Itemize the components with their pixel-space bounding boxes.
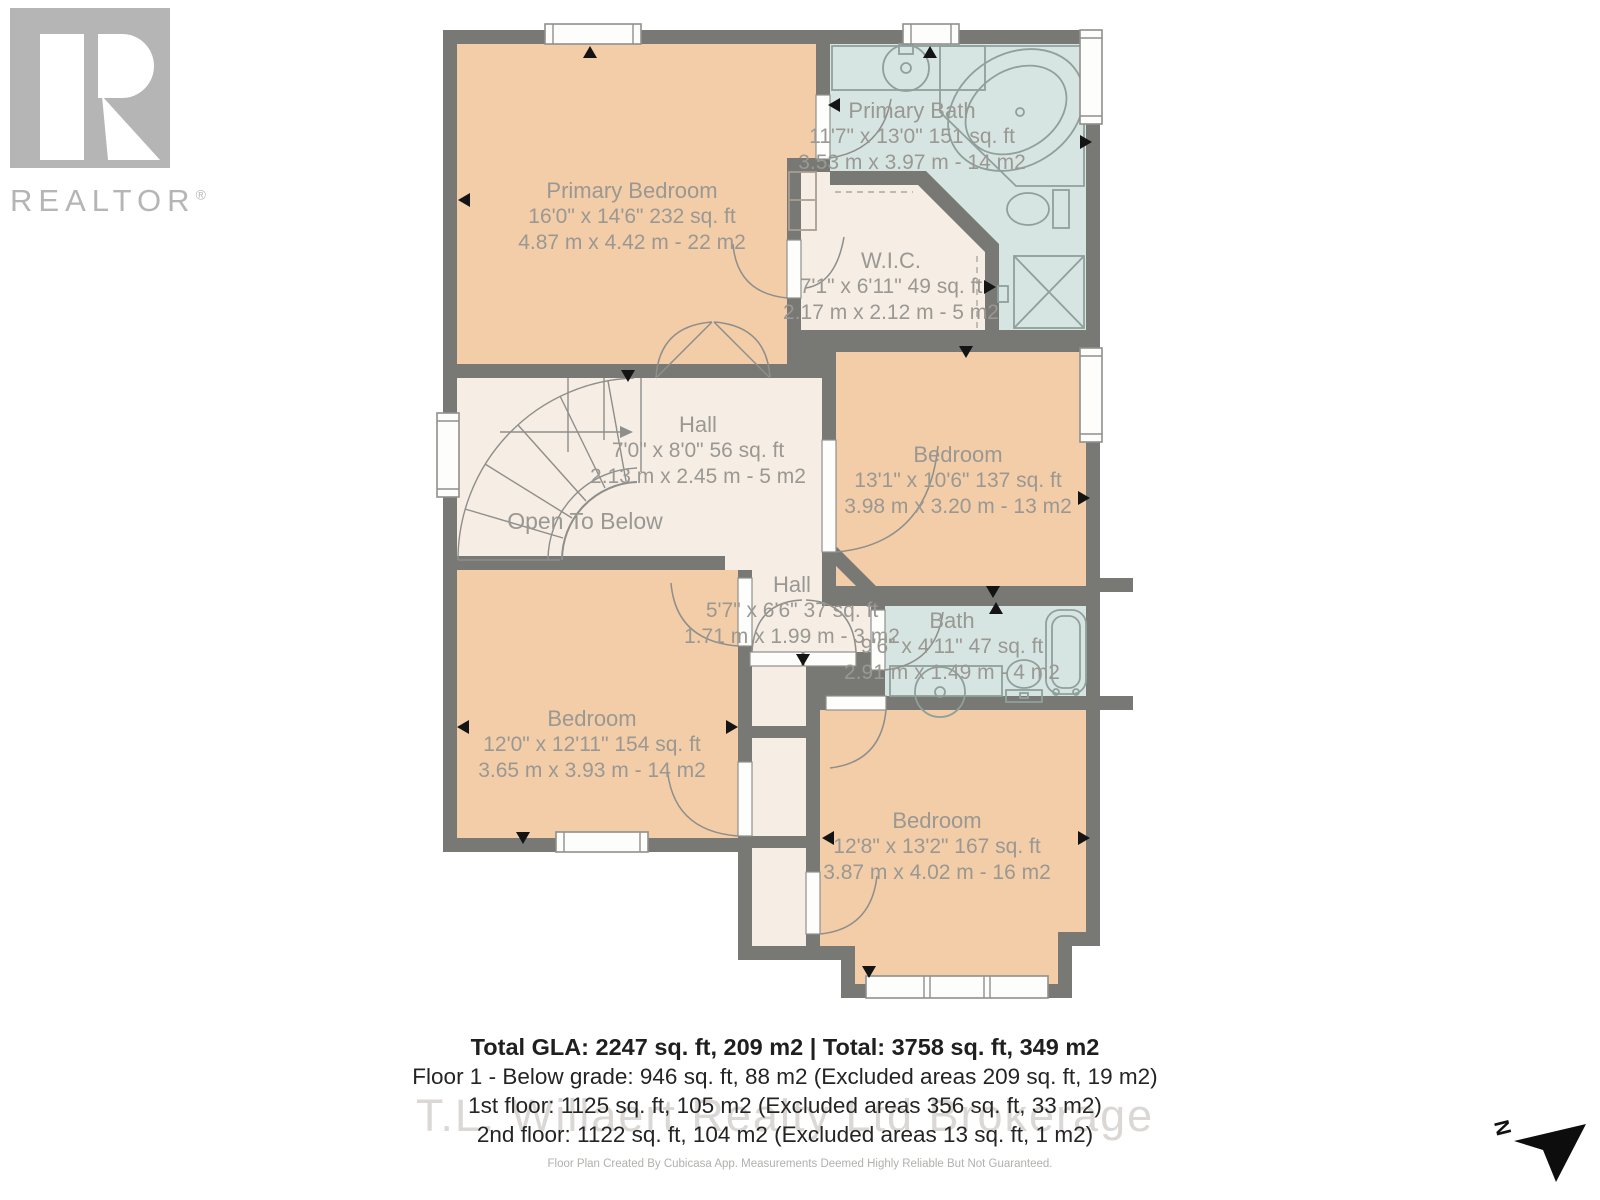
room-dim-ft: 9'6" x 4'11" 47 sq. ft [844, 634, 1060, 660]
realtor-logo-icon [10, 8, 170, 168]
window-icon [556, 832, 648, 852]
window-icon [437, 413, 459, 497]
disclaimer-text: Floor Plan Created By Cubicasa App. Meas… [300, 1158, 1300, 1170]
realtor-logo-text: REALTOR® [10, 183, 206, 219]
closet-top [752, 666, 806, 726]
room-dim-ft: 7'1" x 6'11" 49 sq. ft [783, 274, 999, 300]
room-dim-m: 3.53 m x 3.97 m - 14 m2 [798, 150, 1026, 176]
registered-mark: ® [196, 187, 206, 203]
room-dim-ft: 13'1" x 10'6" 137 sq. ft [844, 468, 1072, 494]
room-dim-m: 2.13 m x 2.45 m - 5 m2 [590, 464, 806, 490]
room-name: Bedroom [823, 808, 1051, 834]
closet-middle [752, 738, 806, 836]
room-label-wic: W.I.C. 7'1" x 6'11" 49 sq. ft 2.17 m x 2… [783, 248, 999, 326]
window-icon [545, 24, 641, 44]
total-gla-line: Total GLA: 2247 sq. ft, 209 m2 | Total: … [385, 1033, 1185, 1062]
window-icon [903, 24, 959, 44]
floor3-line: 2nd floor: 1122 sq. ft, 104 m2 (Excluded… [385, 1120, 1185, 1149]
room-dim-ft: 12'0" x 12'11" 154 sq. ft [478, 732, 706, 758]
room-name: W.I.C. [783, 248, 999, 274]
open-to-below-label: Open To Below [507, 508, 663, 535]
room-label-bedroom-right: Bedroom 13'1" x 10'6" 137 sq. ft 3.98 m … [844, 442, 1072, 520]
room-name: Bedroom [844, 442, 1072, 468]
room-name: Hall [684, 572, 900, 598]
room-dim-ft: 16'0" x 14'6" 232 sq. ft [518, 204, 746, 230]
room-name: Bedroom [478, 706, 706, 732]
room-dim-m: 2.91 m x 1.49 m - 4 m2 [844, 660, 1060, 686]
room-dim-ft: 11'7" x 13'0" 151 sq. ft [798, 124, 1026, 150]
bay-window-icon [866, 976, 1048, 998]
room-dim-m: 3.98 m x 3.20 m - 13 m2 [844, 494, 1072, 520]
room-name: Primary Bath [798, 98, 1026, 124]
room-label-bath: Bath 9'6" x 4'11" 47 sq. ft 2.91 m x 1.4… [844, 608, 1060, 686]
room-name: Hall [590, 412, 806, 438]
room-dim-m: 4.87 m x 4.42 m - 22 m2 [518, 230, 746, 256]
room-label-bedroom-left: Bedroom 12'0" x 12'11" 154 sq. ft 3.65 m… [478, 706, 706, 784]
floor-plan-page: REALTOR® [0, 0, 1600, 1200]
room-label-bedroom-bottom: Bedroom 12'8" x 13'2" 167 sq. ft 3.87 m … [823, 808, 1051, 886]
room-dim-m: 3.65 m x 3.93 m - 14 m2 [478, 758, 706, 784]
window-icon [1080, 348, 1102, 442]
area-summary: Total GLA: 2247 sq. ft, 209 m2 | Total: … [385, 1033, 1185, 1149]
window-icon [1080, 30, 1102, 124]
room-dim-ft: 7'0" x 8'0" 56 sq. ft [590, 438, 806, 464]
room-label-primary-bath: Primary Bath 11'7" x 13'0" 151 sq. ft 3.… [798, 98, 1026, 176]
north-arrow-icon [1455, 1098, 1595, 1193]
room-label-hall-upper: Hall 7'0" x 8'0" 56 sq. ft 2.13 m x 2.45… [590, 412, 806, 490]
room-dim-m: 2.17 m x 2.12 m - 5 m2 [783, 300, 999, 326]
floor2-line: 1st floor: 1125 sq. ft, 105 m2 (Excluded… [385, 1091, 1185, 1120]
room-label-primary-bedroom: Primary Bedroom 16'0" x 14'6" 232 sq. ft… [518, 178, 746, 256]
floor1-line: Floor 1 - Below grade: 946 sq. ft, 88 m2… [385, 1062, 1185, 1091]
room-name: Primary Bedroom [518, 178, 746, 204]
closet-bottom [752, 848, 806, 946]
room-dim-ft: 12'8" x 13'2" 167 sq. ft [823, 834, 1051, 860]
room-name: Bath [844, 608, 1060, 634]
realtor-logo: REALTOR® [10, 8, 206, 219]
room-dim-m: 3.87 m x 4.02 m - 16 m2 [823, 860, 1051, 886]
